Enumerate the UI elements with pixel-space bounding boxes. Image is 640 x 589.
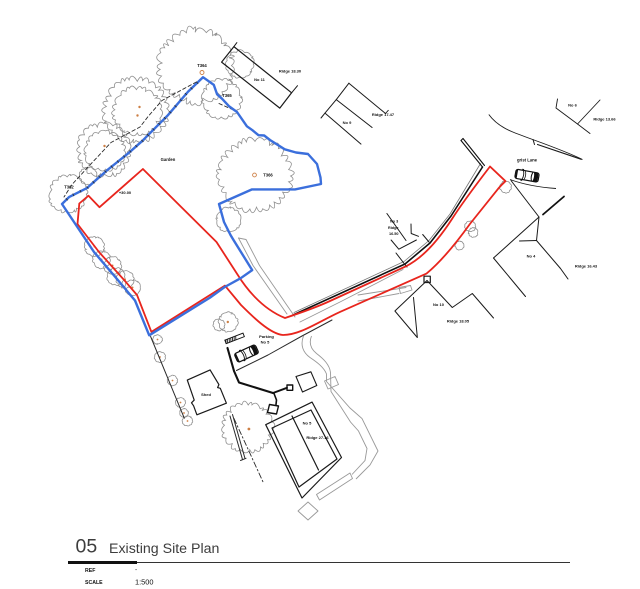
svg-text:Ridge 18.30: Ridge 18.30 — [279, 69, 302, 74]
svg-text:REF: REF — [85, 568, 95, 574]
svg-text:Ridge: Ridge — [388, 226, 399, 230]
svg-text:Ridge 27.16: Ridge 27.16 — [306, 435, 329, 440]
svg-text:Ridge 18.05: Ridge 18.05 — [447, 319, 470, 324]
svg-text:+30.00: +30.00 — [119, 190, 132, 195]
svg-text:SCALE: SCALE — [85, 580, 103, 586]
svg-text:T365: T365 — [222, 93, 232, 98]
svg-text:T362: T362 — [64, 185, 74, 190]
svg-text:No 9: No 9 — [343, 120, 352, 125]
svg-text:No 5: No 5 — [261, 339, 270, 344]
svg-text:16.50: 16.50 — [389, 232, 399, 236]
svg-text:Shed: Shed — [201, 392, 211, 397]
svg-text:No 6: No 6 — [568, 103, 577, 108]
svg-text:T366: T366 — [263, 173, 273, 178]
svg-text:No 10: No 10 — [433, 302, 445, 307]
svg-text:Parking: Parking — [259, 334, 274, 339]
svg-text:Garden: Garden — [161, 157, 176, 162]
svg-text:T364: T364 — [197, 63, 207, 68]
svg-text:Ridge 17.47: Ridge 17.47 — [372, 112, 395, 117]
svg-text:No 5: No 5 — [303, 421, 312, 426]
svg-text:05: 05 — [76, 535, 98, 557]
svg-text:Existing Site Plan: Existing Site Plan — [109, 541, 219, 557]
svg-text:-: - — [135, 567, 137, 574]
svg-text:Ridge 13.66: Ridge 13.66 — [593, 117, 616, 122]
svg-text:No 3: No 3 — [390, 220, 398, 224]
svg-text:No 11: No 11 — [254, 77, 265, 82]
svg-text:1:500: 1:500 — [135, 578, 154, 587]
svg-text:Ridge 16.43: Ridge 16.43 — [575, 264, 598, 269]
svg-text:No 4: No 4 — [527, 254, 536, 259]
svg-text:grist Lane: grist Lane — [517, 158, 538, 163]
